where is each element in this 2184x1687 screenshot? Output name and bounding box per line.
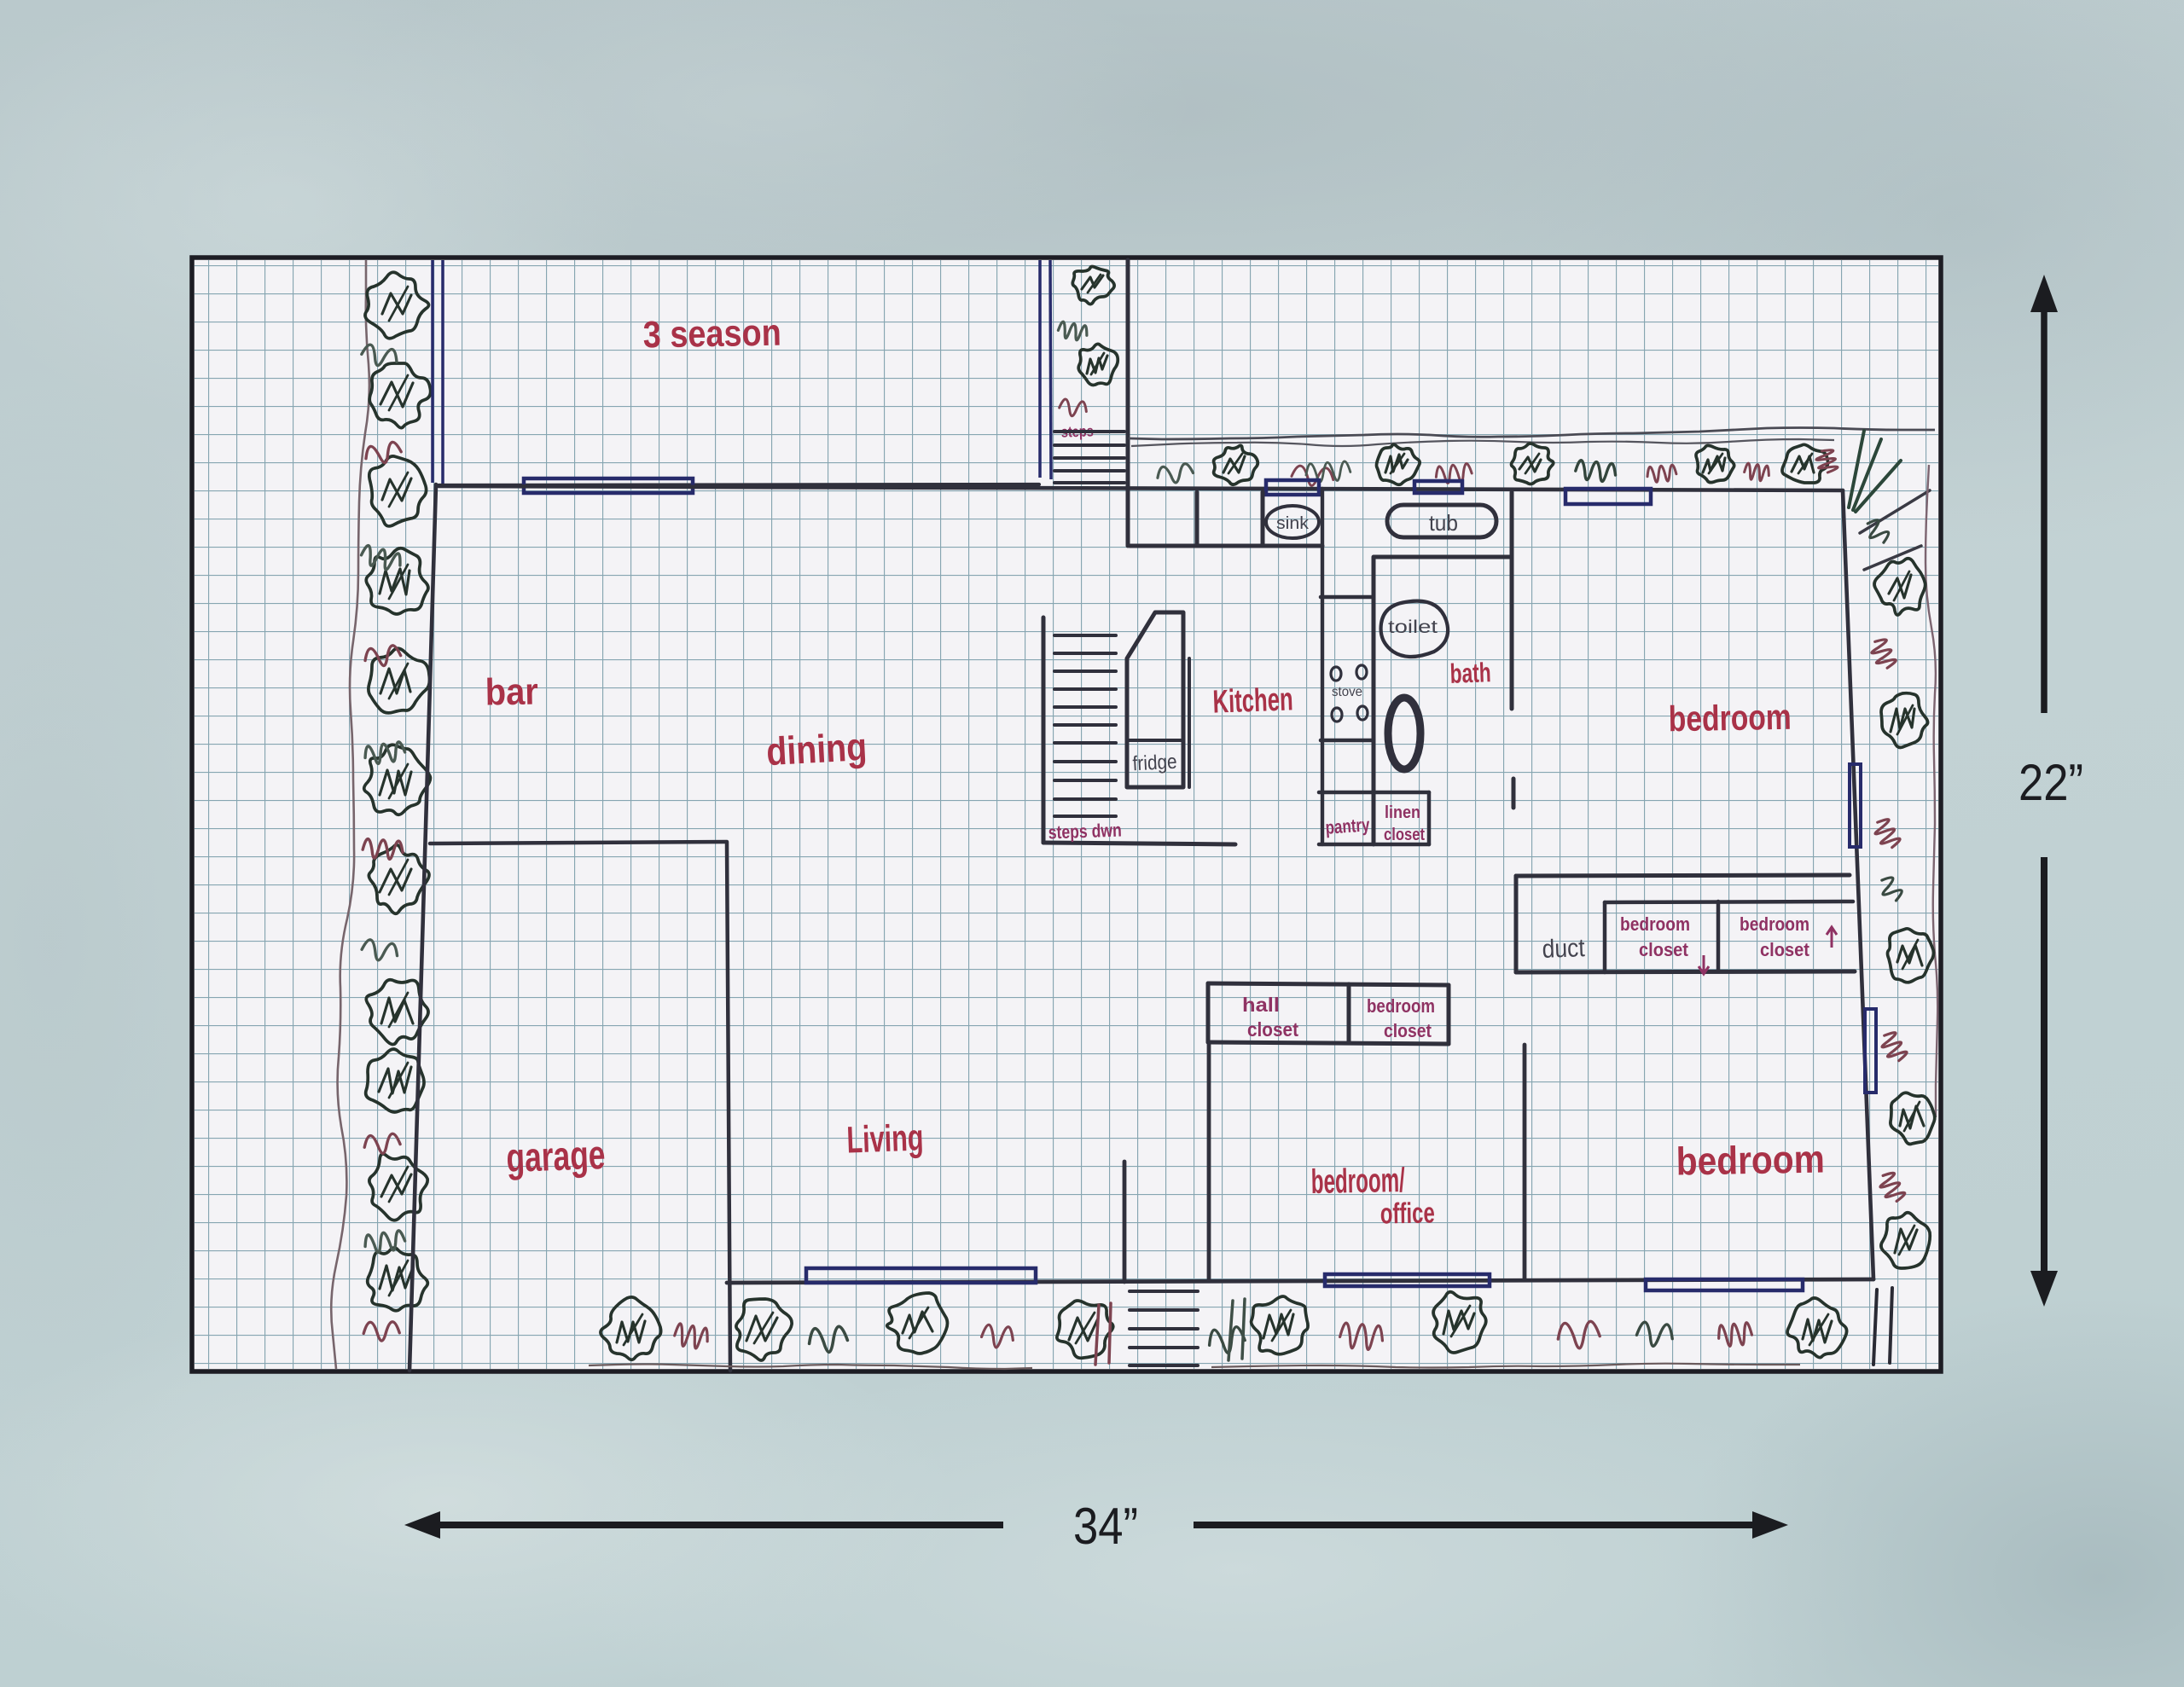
- svg-text:Living: Living: [846, 1116, 925, 1161]
- svg-text:steps dwn: steps dwn: [1048, 820, 1122, 843]
- svg-text:bedroom: bedroom: [1740, 913, 1809, 935]
- svg-text:bedroom/: bedroom/: [1310, 1162, 1405, 1201]
- svg-text:toilet: toilet: [1388, 617, 1438, 637]
- svg-text:tub: tub: [1429, 510, 1458, 536]
- svg-text:closet: closet: [1247, 1018, 1298, 1041]
- svg-text:hall: hall: [1242, 994, 1280, 1016]
- svg-text:closet: closet: [1639, 939, 1689, 960]
- svg-text:stove: stove: [1332, 685, 1362, 699]
- svg-text:bath: bath: [1449, 657, 1491, 689]
- svg-text:sink: sink: [1276, 514, 1310, 533]
- svg-text:closet: closet: [1384, 1020, 1432, 1041]
- svg-text:bedroom: bedroom: [1367, 995, 1435, 1017]
- svg-text:3 season: 3 season: [642, 312, 781, 357]
- svg-text:bedroom: bedroom: [1676, 1136, 1825, 1183]
- svg-text:Kitchen: Kitchen: [1212, 681, 1293, 720]
- svg-text:pantry: pantry: [1325, 814, 1371, 838]
- svg-text:duct: duct: [1542, 934, 1586, 964]
- svg-text:22”: 22”: [2018, 754, 2083, 811]
- svg-text:closet: closet: [1760, 939, 1810, 960]
- svg-text:bedroom: bedroom: [1668, 697, 1792, 739]
- svg-text:34”: 34”: [1073, 1498, 1138, 1555]
- svg-text:office: office: [1380, 1197, 1435, 1230]
- svg-text:dining: dining: [765, 724, 868, 774]
- svg-text:fridge: fridge: [1132, 751, 1177, 776]
- svg-text:bar: bar: [485, 670, 538, 713]
- svg-text:linen: linen: [1385, 803, 1420, 822]
- svg-text:bedroom: bedroom: [1620, 913, 1690, 935]
- svg-text:closet: closet: [1384, 826, 1425, 844]
- svg-text:garage: garage: [506, 1133, 607, 1181]
